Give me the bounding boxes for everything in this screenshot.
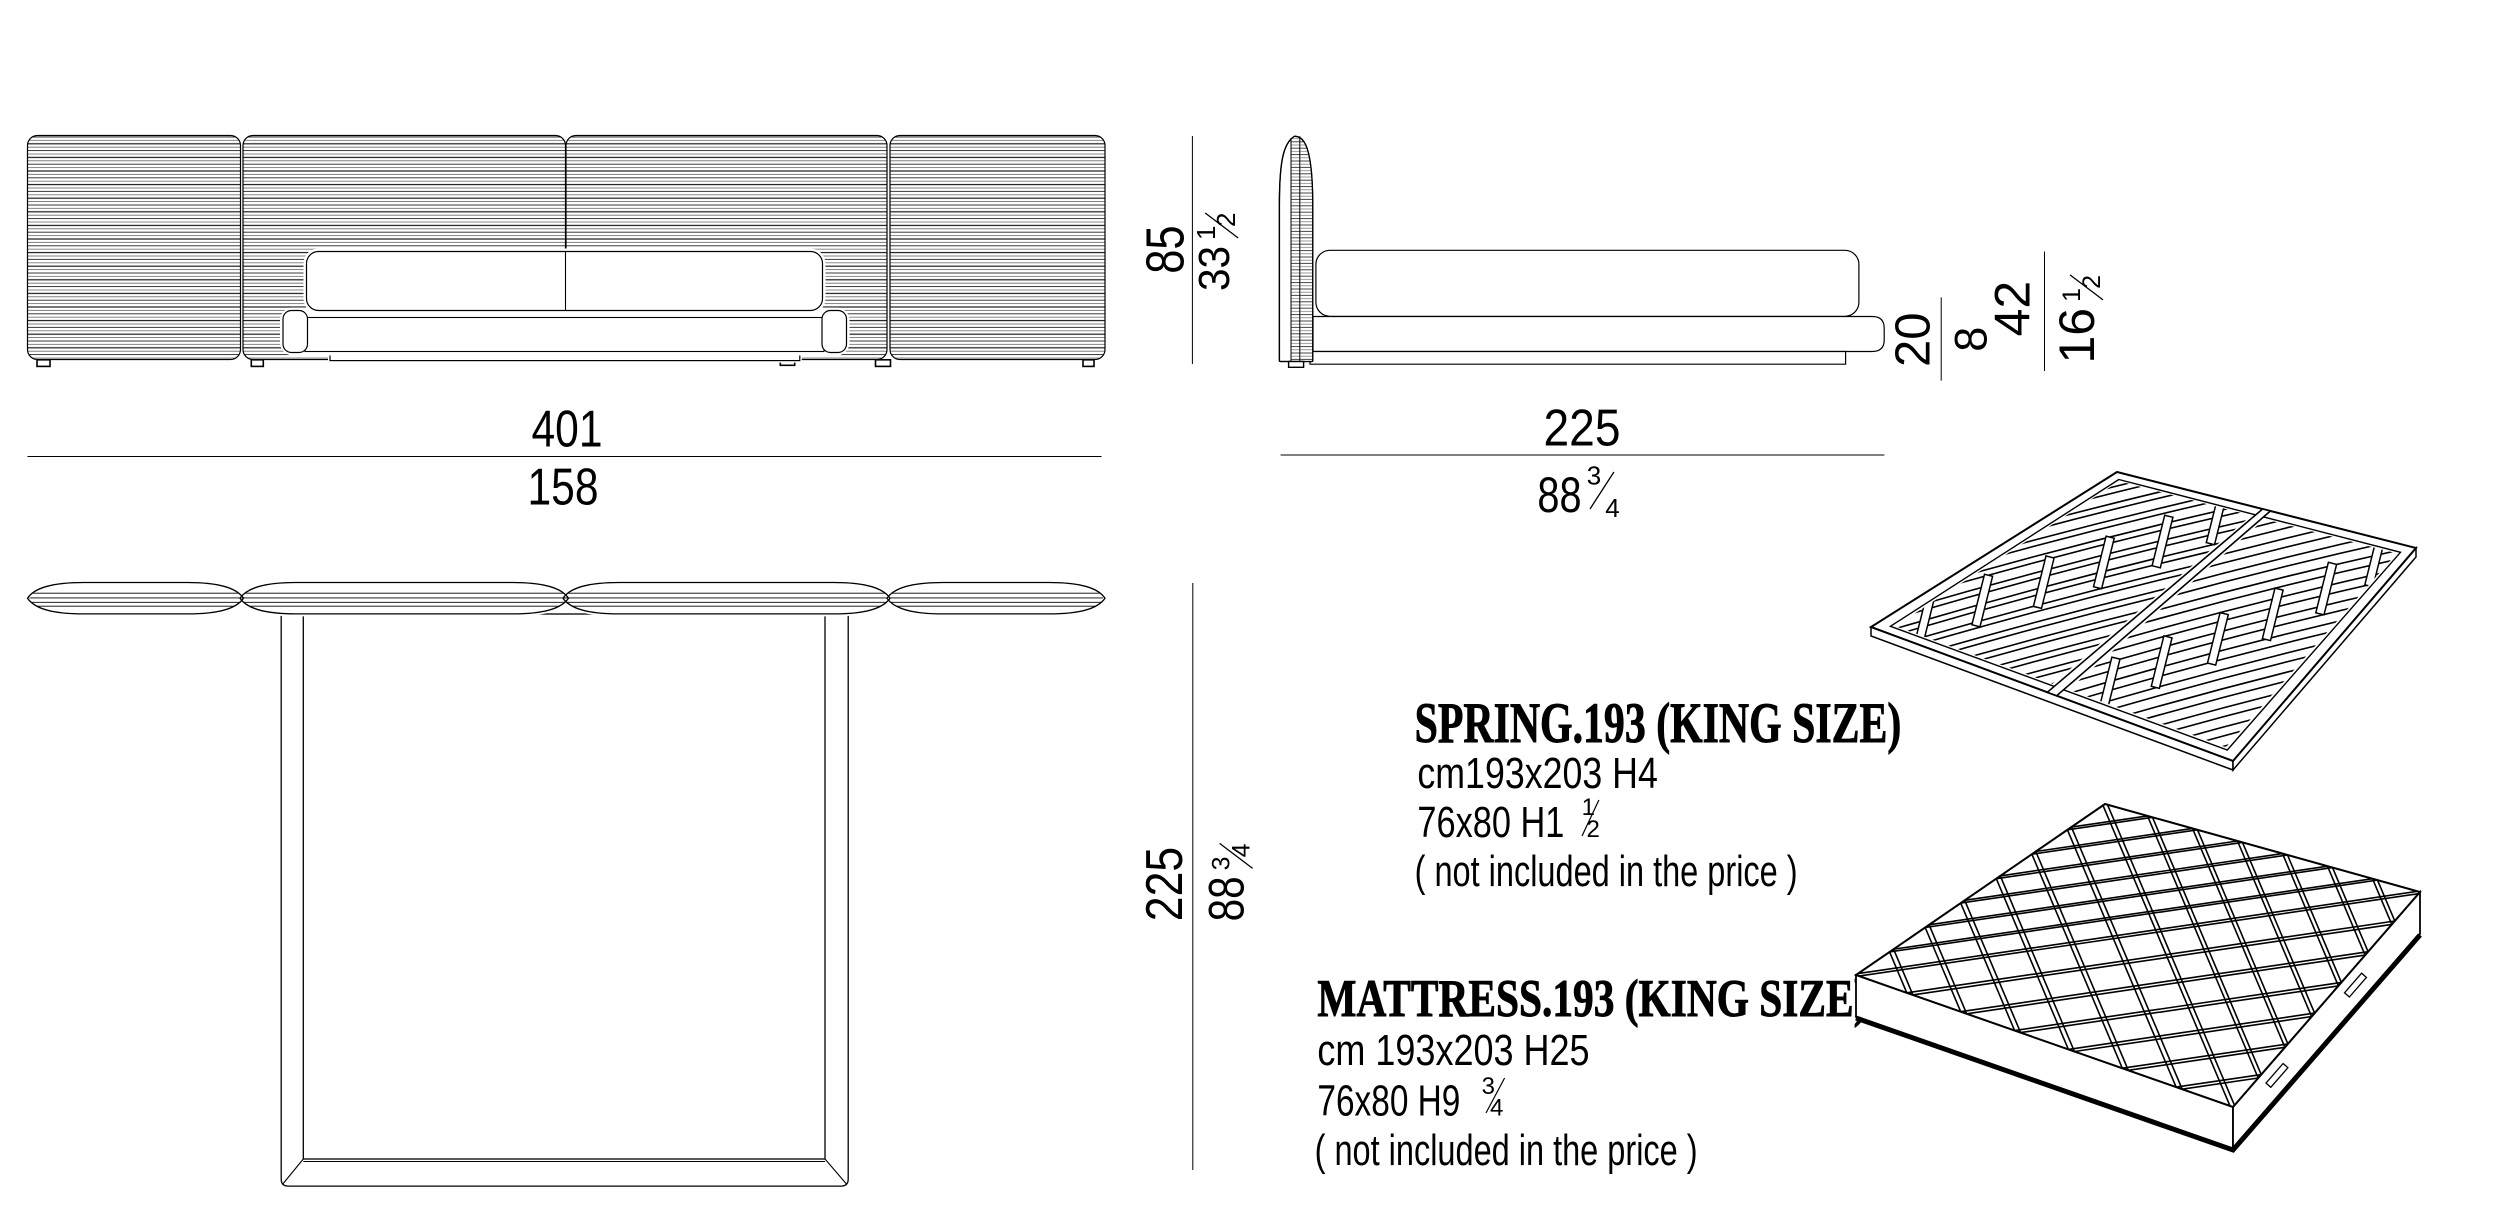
svg-text:SPRING.193 (KING SIZE): SPRING.193 (KING SIZE): [1415, 692, 1902, 755]
svg-text:76x80 H1: 76x80 H1: [1417, 798, 1564, 847]
svg-text:225: 225: [1136, 847, 1194, 921]
svg-text:76x80 H9: 76x80 H9: [1317, 1077, 1460, 1126]
svg-text:3: 3: [1587, 461, 1601, 491]
svg-text:MATTRESS.193 (KING SIZE): MATTRESS.193 (KING SIZE): [1317, 970, 1867, 1028]
svg-text:4: 4: [1228, 843, 1256, 857]
svg-text:( not included in the price ): ( not included in the price ): [1415, 847, 1798, 896]
svg-text:20: 20: [1887, 313, 1941, 368]
svg-text:88: 88: [1537, 467, 1581, 523]
svg-text:225: 225: [1544, 400, 1621, 458]
svg-text:3: 3: [1208, 856, 1236, 870]
svg-text:2: 2: [2078, 275, 2106, 289]
svg-text:cm 193x203 H25: cm 193x203 H25: [1317, 1026, 1589, 1075]
svg-text:2: 2: [1587, 816, 1600, 843]
svg-text:4: 4: [1605, 493, 1619, 523]
svg-text:1: 1: [2058, 288, 2086, 302]
svg-text:42: 42: [1985, 281, 2041, 337]
svg-text:2: 2: [1211, 213, 1241, 227]
svg-text:401: 401: [532, 401, 603, 459]
svg-text:88: 88: [1199, 876, 1255, 921]
svg-text:33: 33: [1190, 246, 1239, 291]
svg-text:4: 4: [1490, 1095, 1503, 1122]
svg-text:85: 85: [1135, 225, 1195, 273]
svg-text:( not included in the price ): ( not included in the price ): [1315, 1126, 1698, 1175]
svg-text:cm193x203 H4: cm193x203 H4: [1417, 749, 1658, 798]
svg-text:158: 158: [528, 459, 599, 517]
svg-text:16: 16: [2049, 308, 2105, 364]
